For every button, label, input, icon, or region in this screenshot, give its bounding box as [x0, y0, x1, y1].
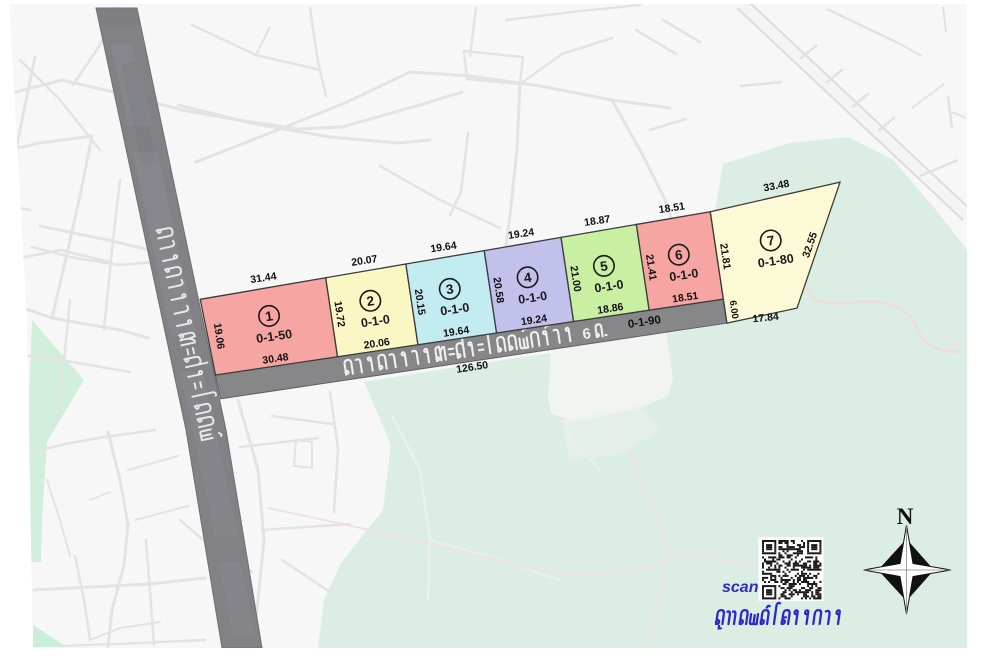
svg-text:scan: scan	[722, 579, 759, 596]
svg-text:N: N	[897, 504, 914, 529]
